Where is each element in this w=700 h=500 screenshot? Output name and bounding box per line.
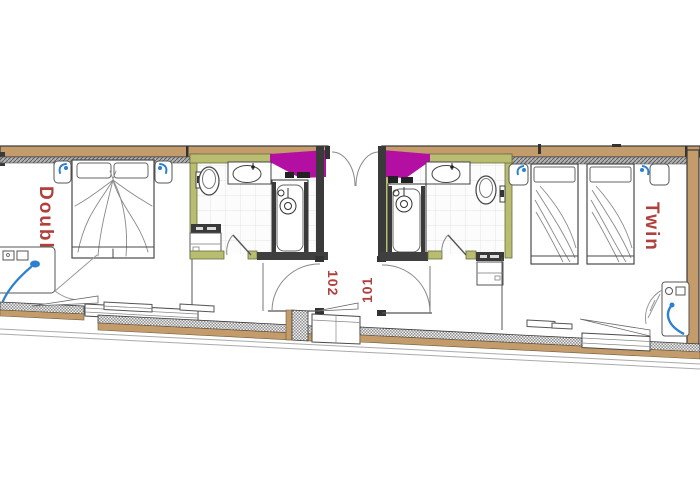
pillow: [114, 163, 148, 178]
stool-swing: [645, 290, 662, 324]
pillow: [77, 163, 111, 178]
dresser-unit: [662, 282, 689, 336]
window-opening-indicator: [317, 303, 358, 311]
dresser-unit: [0, 247, 55, 301]
twin-bathroom: [378, 146, 512, 285]
double-bathroom: [190, 146, 328, 260]
reading-light-icon: [640, 166, 648, 175]
twin-room-label: Twin: [641, 202, 662, 252]
south-wall-band: [0, 296, 700, 359]
shower-icon: [272, 172, 310, 256]
twin-bed-2: [587, 164, 634, 264]
floorplan-svg: Double: [0, 0, 700, 500]
corridor-door-arc: [332, 152, 355, 186]
sill-unit: [552, 323, 572, 329]
double-bed: [72, 160, 154, 258]
basin-icon: [426, 162, 470, 184]
room-102-door: [263, 256, 324, 314]
twin-bed-1: [531, 164, 578, 264]
pillow: [534, 167, 575, 182]
wardrobe-door-swing: [55, 255, 98, 300]
twin-headboard-wall: [505, 157, 689, 164]
lobby-wall: [316, 146, 324, 258]
corridor-door-arc: [356, 152, 379, 186]
room-number-101: 101: [359, 277, 375, 303]
room-number-102: 102: [325, 270, 341, 296]
floorplan-page: Double: [0, 0, 700, 500]
nightstand: [650, 164, 669, 185]
twin-room: Twin: [502, 164, 689, 336]
bathroom-cabinet: [477, 262, 503, 285]
room-101-door: [377, 256, 432, 316]
window: [312, 314, 360, 344]
sill-unit: [180, 304, 214, 312]
window: [582, 333, 650, 351]
pillow: [590, 167, 631, 182]
sill-unit: [527, 320, 555, 328]
basin-icon: [228, 162, 271, 184]
lobby-wall: [378, 146, 386, 258]
shower-icon: [388, 176, 426, 258]
double-room: Double: [0, 160, 192, 314]
